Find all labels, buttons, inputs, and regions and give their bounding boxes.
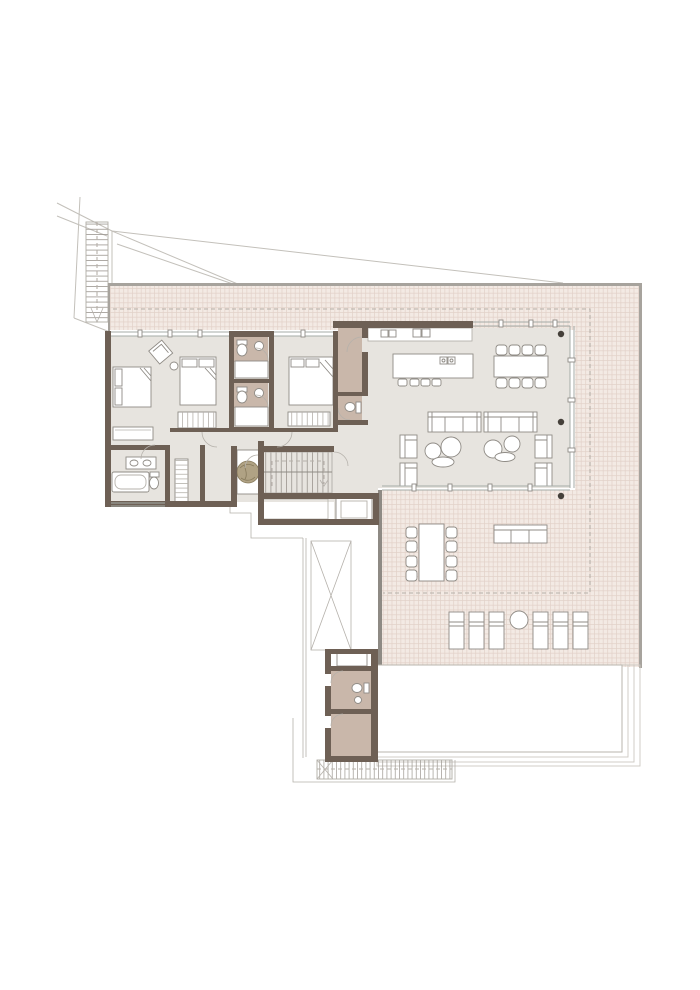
- bedroom-3: [288, 357, 333, 426]
- toilet: [237, 344, 247, 356]
- entry-hall: [237, 450, 259, 494]
- wardrobe-3: [288, 412, 330, 426]
- pool-store-floor: [331, 714, 372, 756]
- basin: [143, 460, 151, 466]
- armchair: [400, 435, 417, 458]
- sink: [389, 330, 396, 337]
- sofa-right: [484, 412, 537, 432]
- bed-3: [289, 357, 333, 405]
- terrace-border-top: [108, 283, 642, 286]
- shower: [235, 407, 268, 426]
- floor-plan-page: [0, 0, 700, 990]
- terrace-border-right: [639, 283, 642, 668]
- bed-1: [113, 367, 151, 407]
- lounger: [449, 612, 464, 649]
- exterior-steps: [317, 760, 452, 779]
- terrace-border-left: [108, 285, 110, 331]
- round-side-table: [510, 611, 528, 629]
- toilet: [352, 684, 362, 693]
- appliance: [413, 329, 421, 337]
- toilet-tank: [364, 683, 369, 693]
- dressing-room: [175, 459, 188, 502]
- lounger: [469, 612, 484, 649]
- niche: [337, 653, 367, 666]
- skylight-void: [311, 541, 351, 650]
- column: [558, 331, 564, 337]
- armchair: [535, 435, 552, 458]
- bedroom-2: [178, 357, 216, 428]
- exterior-staircase: [86, 222, 108, 322]
- lounger: [553, 612, 568, 649]
- toilet-tank: [356, 402, 361, 413]
- sink: [355, 697, 362, 704]
- pool: [377, 665, 640, 766]
- dining-table: [494, 356, 548, 377]
- armchair: [400, 463, 417, 486]
- bed-2: [180, 357, 216, 405]
- window-bench: [113, 427, 153, 440]
- staircase: [263, 452, 332, 493]
- wardrobe-2: [178, 412, 216, 428]
- elevator: [336, 498, 372, 520]
- sofa-left: [428, 412, 481, 432]
- side-table: [170, 362, 178, 370]
- outdoor-sofa: [494, 525, 547, 543]
- basin: [130, 460, 138, 466]
- toilet: [345, 403, 355, 412]
- toilet: [150, 477, 159, 489]
- toilet: [237, 391, 247, 403]
- appliance: [422, 329, 430, 337]
- sink: [255, 389, 264, 398]
- floor-plan-drawing: [0, 0, 700, 990]
- sink: [255, 342, 264, 351]
- armchair: [535, 463, 552, 486]
- lounger: [533, 612, 548, 649]
- kitchen-island: [393, 354, 473, 378]
- pool-house: [325, 649, 378, 762]
- sink: [381, 330, 388, 337]
- outdoor-table: [419, 524, 444, 581]
- shower: [235, 361, 268, 378]
- toilet-tank: [150, 472, 159, 477]
- lounger: [573, 612, 588, 649]
- lounger: [489, 612, 504, 649]
- column: [558, 419, 564, 425]
- column: [558, 493, 564, 499]
